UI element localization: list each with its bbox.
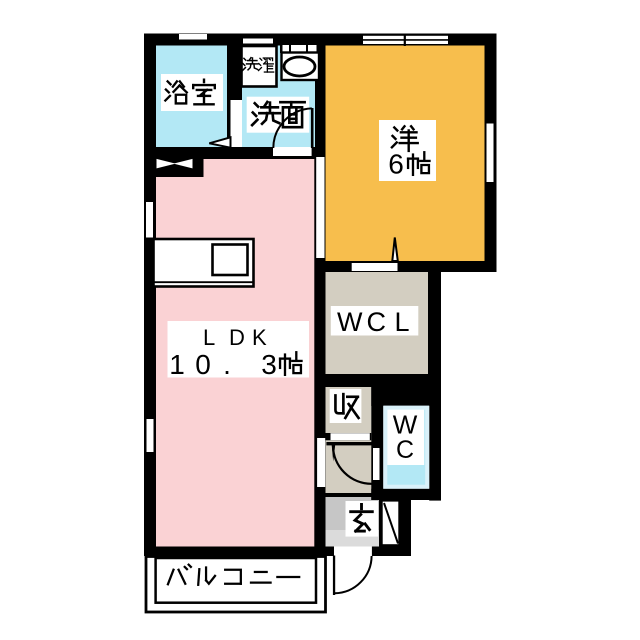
svg-text:W: W xyxy=(337,307,363,337)
svg-text:W: W xyxy=(393,410,418,440)
svg-text:D: D xyxy=(229,325,245,350)
svg-text:6: 6 xyxy=(388,149,404,180)
svg-text:.: . xyxy=(223,349,231,380)
svg-text:C: C xyxy=(396,436,414,464)
svg-text:0: 0 xyxy=(195,349,211,380)
svg-text:3: 3 xyxy=(261,349,277,380)
svg-text:C: C xyxy=(367,307,387,337)
svg-text:L: L xyxy=(395,307,410,337)
svg-text:L: L xyxy=(203,325,215,350)
svg-text:1: 1 xyxy=(169,349,185,380)
svg-text:K: K xyxy=(252,325,267,350)
